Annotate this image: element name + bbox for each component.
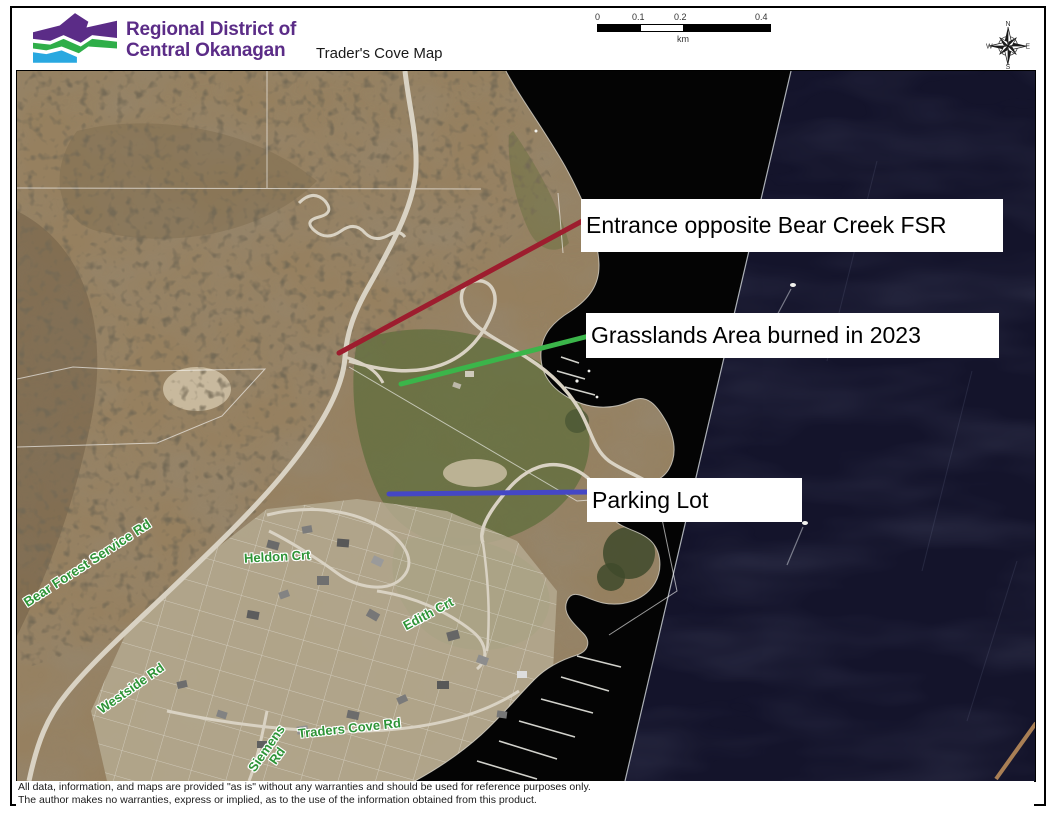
disclaimer: All data, information, and maps are prov… [16, 781, 1034, 806]
logo-blue-band [33, 50, 77, 62]
disclaimer-line1: All data, information, and maps are prov… [18, 781, 1034, 794]
compass-w: W [986, 44, 993, 51]
org-title-line1: Regional District of [126, 19, 296, 40]
grasslands-callout: Grasslands Area burned in 2023 [586, 313, 999, 358]
entrance-callout: Entrance opposite Bear Creek FSR [581, 199, 1003, 252]
disclaimer-line2: The author makes no warranties, express … [18, 794, 1034, 807]
parking-leader-line [389, 492, 589, 494]
parking-callout: Parking Lot [587, 478, 802, 522]
scale-ticks: 0 0.1 0.2 0.4 [595, 12, 775, 24]
logo-mountain [33, 13, 117, 43]
scale-bar: 0 0.1 0.2 0.4 km [595, 12, 775, 56]
map-title: Trader's Cove Map [316, 45, 443, 62]
scale-bar-graphic [597, 24, 771, 32]
aerial-map: Entrance opposite Bear Creek FSR Grassla… [16, 70, 1036, 782]
scale-tick-04: 0.4 [755, 12, 768, 22]
logo-green-band [33, 39, 117, 53]
scale-tick-0: 0 [595, 12, 600, 22]
scale-unit: km [595, 34, 771, 44]
compass-e: E [1025, 44, 1030, 51]
rdco-logo [33, 11, 117, 63]
compass-rose-icon: N E S W [984, 20, 1032, 70]
org-title-line2: Central Okanagan [126, 40, 296, 61]
scale-tick-01: 0.1 [632, 12, 645, 22]
org-title: Regional District of Central Okanagan [126, 19, 296, 61]
scale-tick-02: 0.2 [674, 12, 687, 22]
compass-n: N [1005, 21, 1010, 28]
aerial-imagery [17, 71, 1035, 781]
